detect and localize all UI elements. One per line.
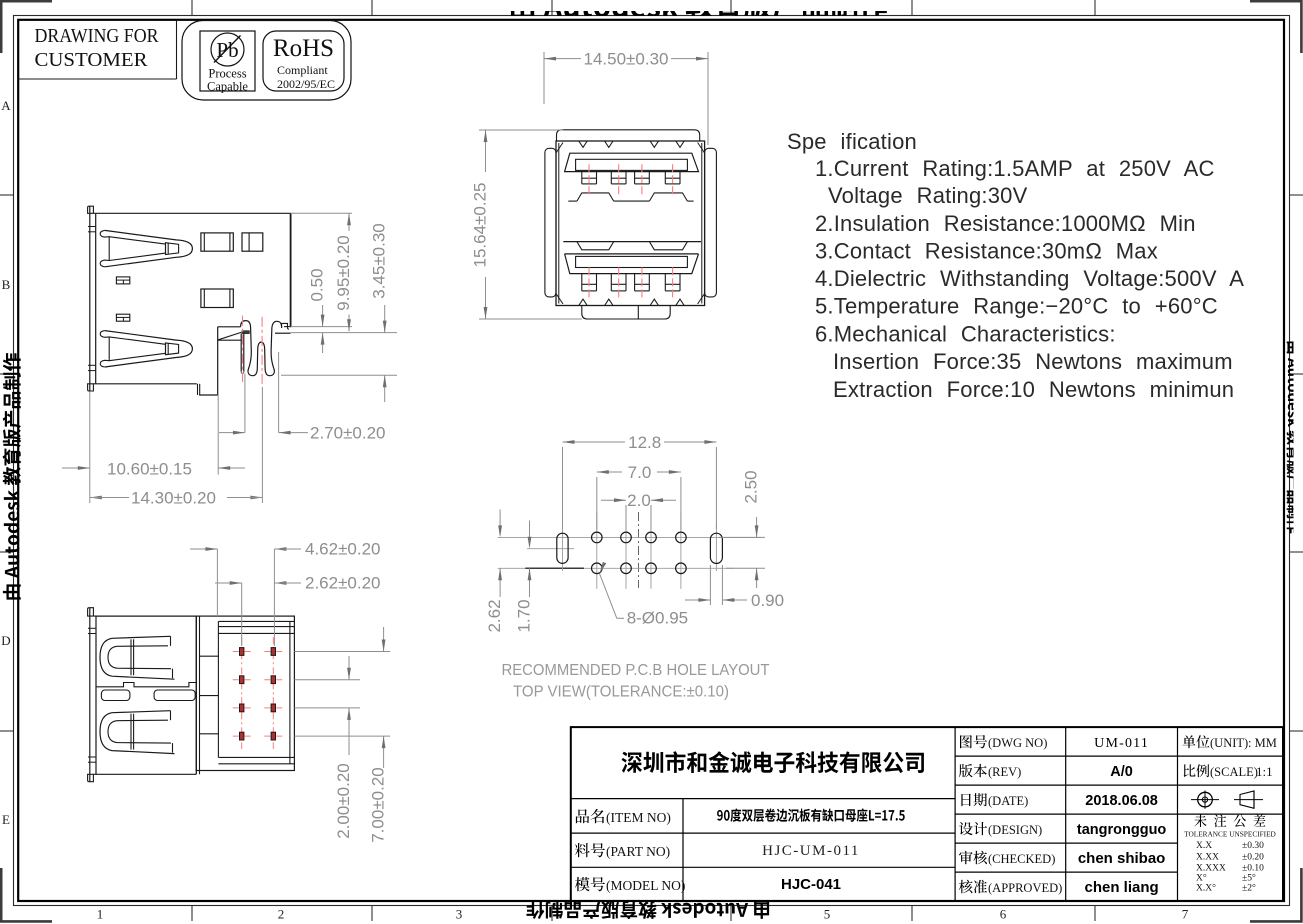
svg-text:X.XXX: X.XXX: [1196, 864, 1226, 874]
svg-text:0.90: 0.90: [751, 591, 784, 610]
svg-text:(CHECKED): (CHECKED): [988, 852, 1055, 866]
svg-text:(SCALE): (SCALE): [1210, 765, 1258, 779]
svg-text:A: A: [1, 98, 11, 113]
svg-text:±0.30: ±0.30: [1242, 841, 1264, 851]
svg-text:X.X: X.X: [1196, 841, 1212, 851]
svg-text:X.XX: X.XX: [1196, 853, 1219, 863]
svg-text:2018.06.08: 2018.06.08: [1085, 793, 1158, 809]
svg-text:2.70±0.20: 2.70±0.20: [310, 424, 386, 443]
svg-text:2.62: 2.62: [485, 599, 504, 632]
svg-text:A/0: A/0: [1110, 764, 1133, 780]
svg-text:E: E: [2, 812, 10, 827]
svg-text:Spe ification: Spe ification: [787, 129, 917, 154]
svg-text:10.60±0.15: 10.60±0.15: [107, 460, 192, 479]
svg-text:Process: Process: [208, 67, 246, 81]
svg-text:7.00±0.20: 7.00±0.20: [369, 767, 388, 843]
svg-text:Capable: Capable: [207, 80, 248, 94]
svg-text:X°: X°: [1196, 873, 1207, 884]
svg-text:8-Ø0.95: 8-Ø0.95: [627, 609, 688, 628]
svg-text:CUSTOMER: CUSTOMER: [35, 49, 149, 71]
svg-text:B: B: [2, 277, 11, 292]
svg-text:DRAWING FOR: DRAWING FOR: [35, 25, 160, 47]
svg-text:6: 6: [1000, 907, 1007, 922]
svg-text:14.50±0.30: 14.50±0.30: [584, 50, 669, 69]
svg-text:tangrongguo: tangrongguo: [1077, 822, 1167, 838]
svg-text:(DWG NO): (DWG NO): [988, 736, 1047, 750]
svg-text:UM-011: UM-011: [1094, 736, 1149, 751]
svg-text:2.0: 2.0: [627, 491, 651, 510]
svg-text:1.Current Rating:1.5AMP at 250: 1.Current Rating:1.5AMP at 250V AC: [815, 156, 1215, 181]
svg-text:2.50: 2.50: [742, 470, 761, 503]
svg-text:6.Mechanical Characteristics:: 6.Mechanical Characteristics:: [815, 322, 1116, 347]
svg-text:5.Temperature Range:−20°C to +: 5.Temperature Range:−20°C to +60°C: [815, 294, 1218, 319]
svg-text:2: 2: [278, 907, 285, 922]
svg-text:: MM: : MM: [1248, 736, 1277, 750]
svg-text:TOLERANCE UNSPECIFIED: TOLERANCE UNSPECIFIED: [1184, 830, 1276, 839]
svg-text:±0.20: ±0.20: [1242, 853, 1264, 863]
svg-text:D: D: [1, 633, 10, 648]
svg-text:RoHS: RoHS: [273, 35, 334, 62]
svg-text:(ITEM NO): (ITEM NO): [606, 810, 671, 825]
svg-text:(DATE): (DATE): [988, 794, 1028, 808]
svg-text:RECOMMENDED P.C.B HOLE LAYOUT: RECOMMENDED P.C.B HOLE LAYOUT: [502, 662, 771, 679]
svg-text:Insertion Force:35 Newtons max: Insertion Force:35 Newtons maximum: [833, 349, 1233, 374]
svg-text:HJC-041: HJC-041: [781, 876, 841, 893]
svg-text:±5°: ±5°: [1242, 873, 1256, 884]
svg-text:±2°: ±2°: [1242, 883, 1256, 894]
svg-text:7: 7: [1182, 907, 1189, 922]
svg-text:Extraction Force:10 Newtons mi: Extraction Force:10 Newtons minimun: [833, 377, 1234, 402]
svg-text:12.8: 12.8: [628, 433, 661, 452]
svg-text:7.0: 7.0: [628, 463, 652, 482]
svg-text:(PART NO): (PART NO): [606, 844, 670, 859]
svg-text:15.64±0.25: 15.64±0.25: [471, 183, 490, 268]
svg-text:HJC-UM-011: HJC-UM-011: [762, 843, 860, 859]
svg-text:TOP VIEW(TOLERANCE:±0.10): TOP VIEW(TOLERANCE:±0.10): [513, 684, 729, 701]
svg-text:3: 3: [456, 907, 463, 922]
svg-text:2.Insulation Resistance:1000MΩ: 2.Insulation Resistance:1000MΩ Min: [815, 211, 1196, 236]
svg-text:Voltage Rating:30V: Voltage Rating:30V: [828, 183, 1028, 208]
svg-text:0.50: 0.50: [308, 268, 327, 301]
svg-text:(UNIT): (UNIT): [1210, 736, 1248, 750]
svg-text:4.Dielectric Withstanding Volt: 4.Dielectric Withstanding Voltage:500V A: [815, 266, 1244, 291]
svg-text:±0.10: ±0.10: [1242, 864, 1264, 874]
svg-text:(APPROVED): (APPROVED): [988, 881, 1062, 895]
svg-text:1: 1: [97, 907, 104, 922]
svg-text:(REV): (REV): [988, 765, 1021, 779]
svg-text:9.95±0.20: 9.95±0.20: [334, 235, 353, 311]
svg-text:X.X°: X.X°: [1196, 883, 1216, 894]
svg-text:4.62±0.20: 4.62±0.20: [305, 540, 381, 559]
svg-text:1.70: 1.70: [515, 599, 534, 632]
svg-text:2.00±0.20: 2.00±0.20: [334, 763, 353, 839]
svg-text:(MODEL NO): (MODEL NO): [606, 878, 685, 893]
svg-text:14.30±0.20: 14.30±0.20: [131, 489, 216, 508]
svg-text:2.62±0.20: 2.62±0.20: [305, 574, 381, 593]
svg-text:5: 5: [824, 907, 831, 922]
svg-text:Compliant: Compliant: [277, 63, 328, 77]
svg-text:3.45±0.30: 3.45±0.30: [370, 223, 389, 299]
svg-text:3.Contact Resistance:30mΩ Max: 3.Contact Resistance:30mΩ Max: [815, 239, 1158, 264]
svg-text:chen shibao: chen shibao: [1078, 850, 1166, 867]
svg-text:chen liang: chen liang: [1085, 879, 1159, 896]
svg-text:2002/95/EC: 2002/95/EC: [277, 77, 335, 91]
svg-text:1:1: 1:1: [1256, 764, 1273, 779]
svg-text:(DESIGN): (DESIGN): [988, 823, 1042, 837]
